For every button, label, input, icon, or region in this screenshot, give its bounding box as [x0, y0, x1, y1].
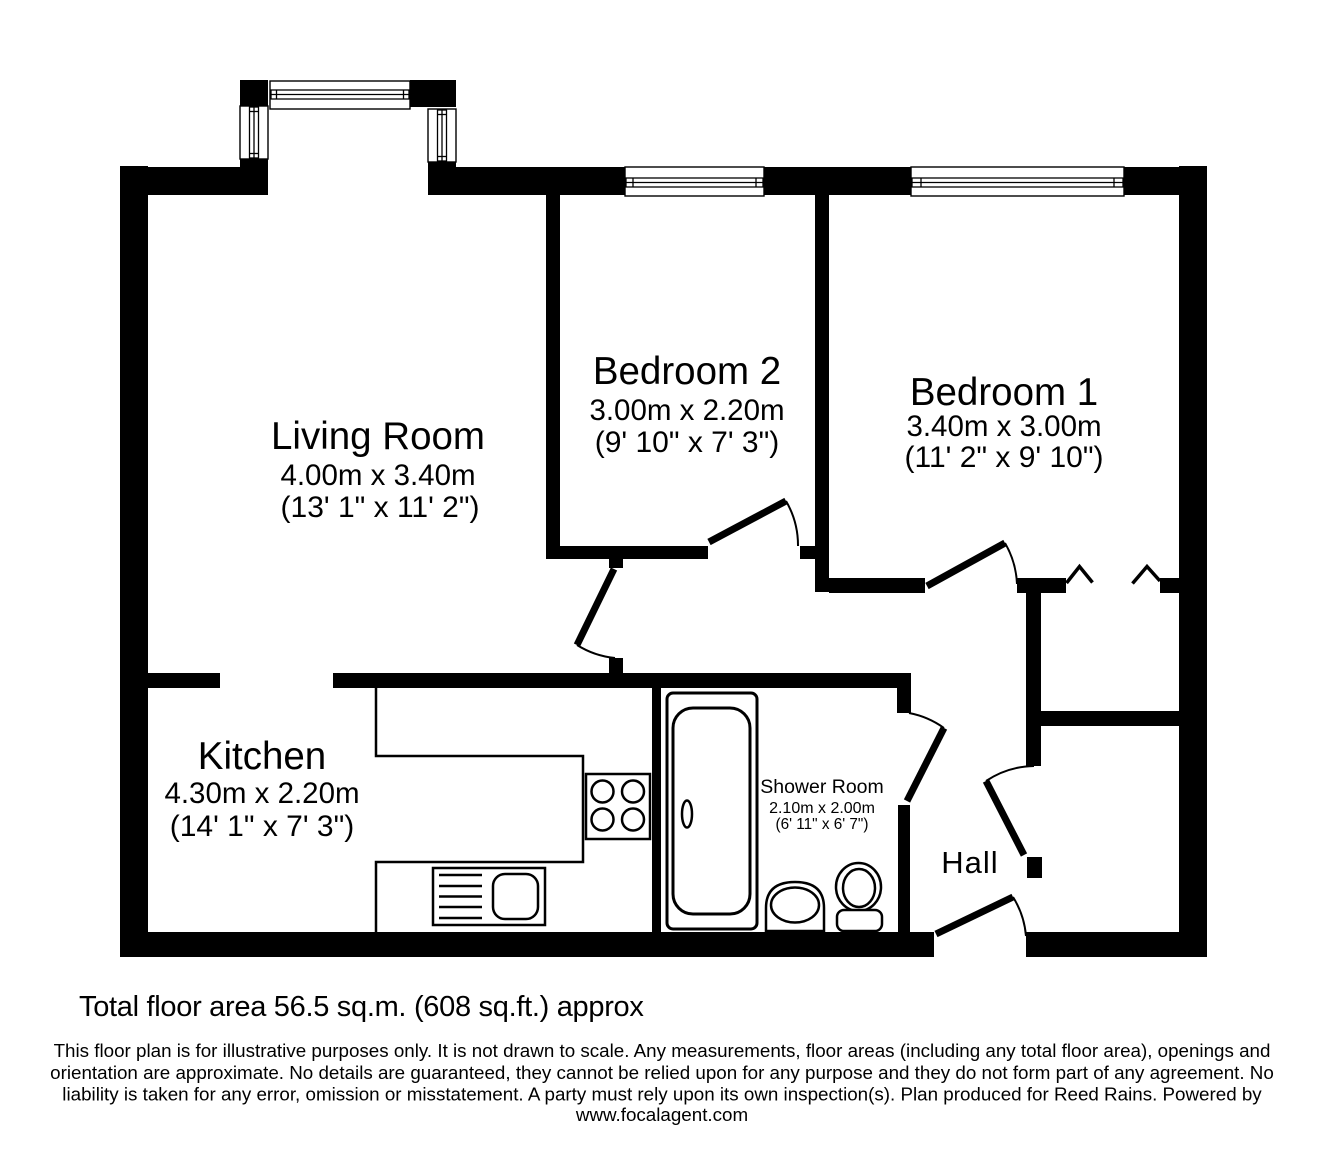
svg-text:Living Room: Living Room: [271, 415, 485, 458]
svg-text:Total floor area 56.5 sq.m. (6: Total floor area 56.5 sq.m. (608 sq.ft.)…: [79, 991, 644, 1023]
svg-text:4.00m x 3.40m: 4.00m x 3.40m: [280, 459, 475, 492]
svg-text:3.40m x 3.00m: 3.40m x 3.00m: [906, 410, 1101, 443]
svg-text:www.focalagent.com: www.focalagent.com: [575, 1104, 748, 1125]
svg-text:Hall: Hall: [941, 845, 998, 880]
svg-text:(13' 1" x 11' 2"): (13' 1" x 11' 2"): [281, 491, 480, 524]
svg-text:(6' 11" x 6' 7"): (6' 11" x 6' 7"): [776, 816, 869, 833]
svg-text:(14' 1" x 7' 3"): (14' 1" x 7' 3"): [170, 810, 355, 843]
svg-text:3.00m x 2.20m: 3.00m x 2.20m: [589, 394, 784, 427]
svg-text:Bedroom 1: Bedroom 1: [910, 371, 1098, 414]
svg-text:(11' 2" x 9' 10"): (11' 2" x 9' 10"): [905, 441, 1104, 474]
svg-text:This floor plan is for illustr: This floor plan is for illustrative purp…: [54, 1040, 1271, 1061]
svg-text:Bedroom 2: Bedroom 2: [593, 350, 781, 393]
svg-text:(9' 10" x 7' 3"): (9' 10" x 7' 3"): [595, 426, 780, 459]
svg-text:2.10m x 2.00m: 2.10m x 2.00m: [769, 800, 875, 817]
svg-text:liability is taken for any err: liability is taken for any error, omissi…: [62, 1084, 1262, 1105]
svg-text:Shower Room: Shower Room: [760, 776, 884, 798]
svg-text:orientation are approximate. N: orientation are approximate. No details …: [50, 1062, 1274, 1083]
svg-text:Kitchen: Kitchen: [198, 735, 326, 778]
svg-text:4.30m x 2.20m: 4.30m x 2.20m: [164, 777, 359, 810]
